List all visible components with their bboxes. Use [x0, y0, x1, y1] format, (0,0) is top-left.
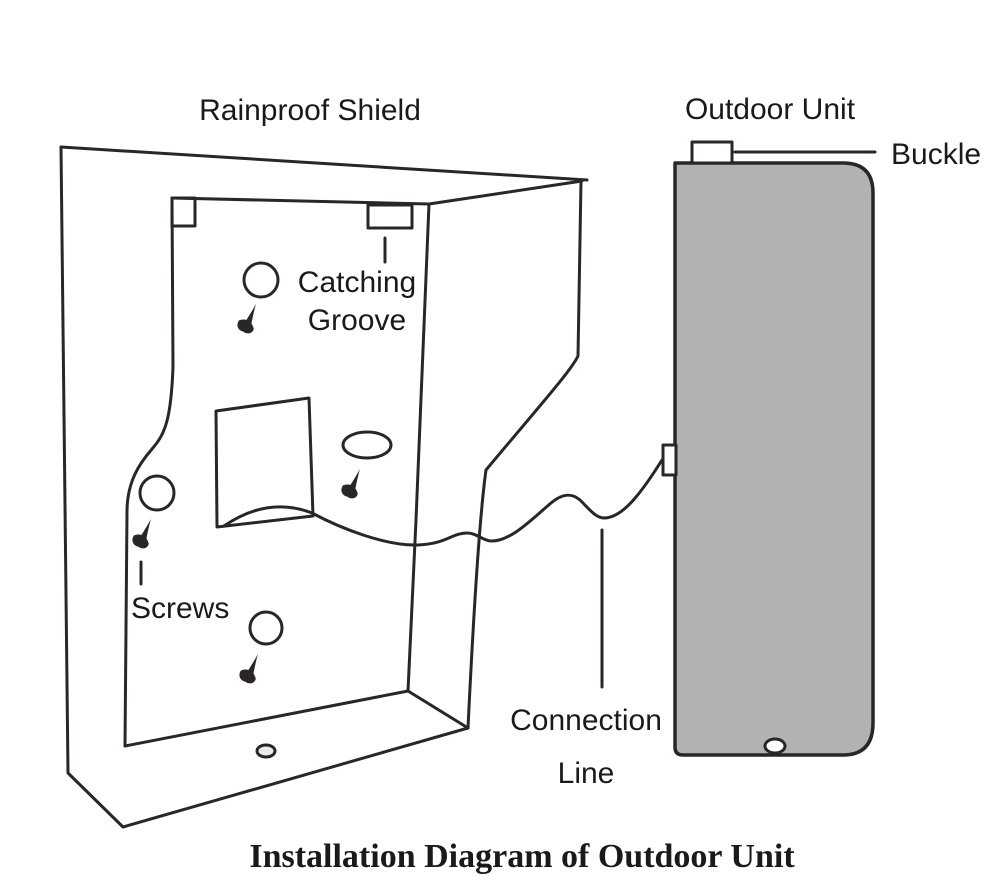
unit-drain-hole: [765, 739, 785, 753]
screw-hole-left: [140, 476, 174, 510]
connection-line-label: Connection Line: [486, 694, 686, 800]
shield-drain-hole: [257, 745, 275, 757]
shield-top-edge: [61, 147, 587, 180]
installation-diagram: Rainproof Shield Outdoor Unit Buckle Cat…: [0, 0, 1000, 895]
connection-line-label-line2: Line: [486, 747, 686, 800]
rainproof-shield-label: Rainproof Shield: [185, 93, 435, 128]
catching-groove-notch-large: [368, 205, 412, 228]
shield-front-left-edge: [125, 198, 173, 746]
screws-label: Screws: [131, 591, 229, 626]
connection-line-label-line1: Connection: [486, 694, 686, 747]
catching-groove-notch-small: [172, 198, 195, 226]
screw-hole-bottom: [250, 612, 282, 644]
screw-icon-bottom: [237, 650, 266, 685]
outdoor-unit-body: [675, 163, 873, 755]
buckle-tab: [692, 142, 732, 163]
shield-side-bottom-edge: [408, 691, 468, 728]
shield-front-bottom-edge: [125, 691, 408, 746]
catching-groove-label: Catching Groove: [257, 264, 457, 340]
shield-front-top-edge: [172, 198, 429, 204]
line-art: [61, 142, 875, 827]
screw-icon-left: [130, 515, 159, 550]
catching-groove-label-line1: Catching: [257, 264, 457, 302]
diagram-title: Installation Diagram of Outdoor Unit: [222, 838, 822, 876]
outdoor-unit-label: Outdoor Unit: [670, 92, 870, 127]
catching-groove-label-line2: Groove: [257, 302, 457, 340]
shield-top-right-fold-edge: [429, 181, 582, 204]
wire-hook-tab: [663, 445, 676, 475]
buckle-label: Buckle: [891, 137, 981, 172]
screw-icon-oval: [339, 465, 368, 500]
screw-hole-oval: [343, 432, 391, 458]
